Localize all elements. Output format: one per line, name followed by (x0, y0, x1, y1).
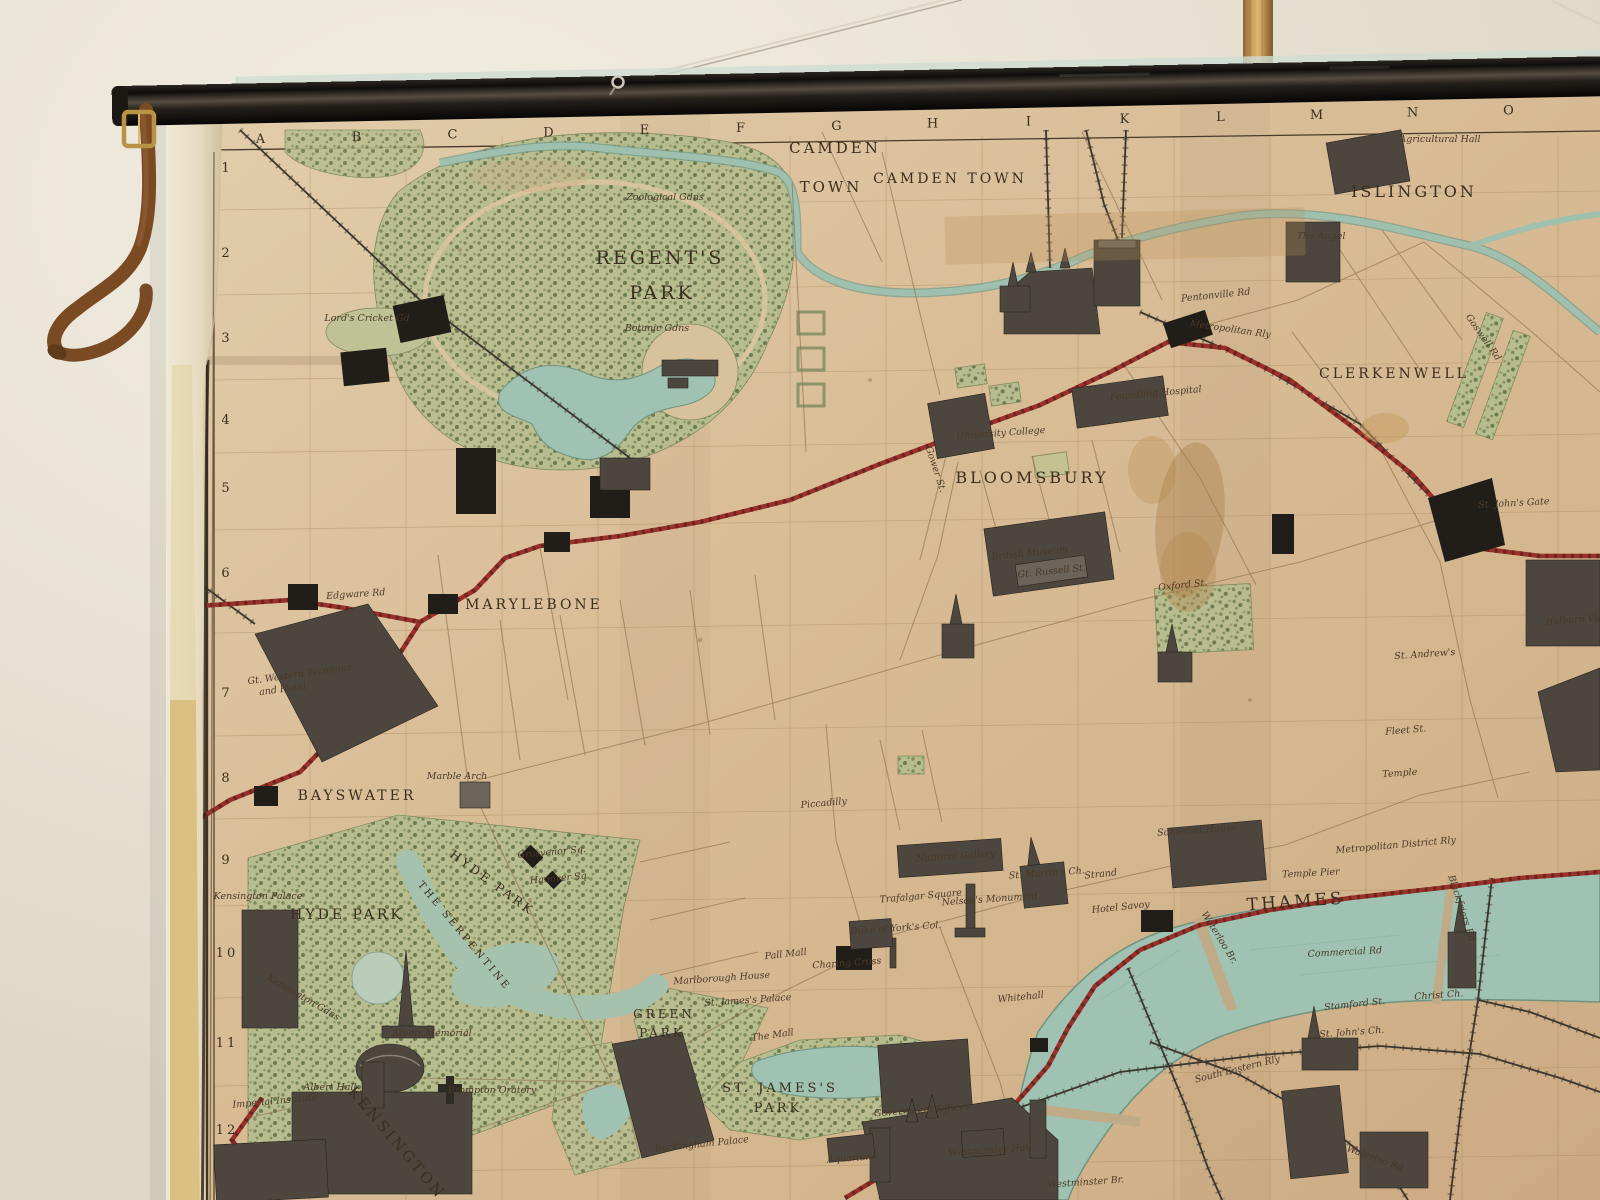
map-label-grid-letter-B: B (352, 130, 365, 145)
map-label-albert-hall: Albert Hall (302, 1082, 356, 1093)
map-label-grid-letter-M: M (1310, 108, 1326, 123)
map-label-camden-town-1b: TOWN (800, 178, 863, 196)
map-label-green-park-2: PARK (639, 1026, 685, 1040)
map-label-the-angel: The Angel (1297, 231, 1346, 242)
kensington-palace-building (242, 910, 298, 1028)
map-label-bayswater: BAYSWATER (298, 788, 417, 804)
map-label-grid-row-6: 6 (221, 566, 232, 581)
map-label-botanic-gdns: Botanic Gdns (624, 323, 689, 334)
map-label-grid-letter-E: E (640, 123, 653, 138)
map-label-st-jamess-park-2: PARK (754, 1101, 802, 1116)
map-label-grid-letter-C: C (448, 128, 461, 143)
map-label-marble-arch: Marble Arch (426, 771, 488, 782)
map-label-grid-letter-I: I (1026, 114, 1034, 129)
map-label-grid-letter-O: O (1503, 103, 1517, 118)
map-label-green-park-1: GREEN (633, 1007, 695, 1021)
map-label-islington: ISLINGTON (1351, 182, 1477, 201)
map-label-camden-town-1a: CAMDEN (789, 139, 881, 157)
round-pond (352, 952, 404, 1004)
map-label-brompton-oratory: Brompton Oratory (447, 1085, 537, 1096)
map-label-clerkenwell: CLERKENWELL (1319, 366, 1469, 382)
map-label-grid-row-1: 1 (221, 161, 232, 176)
map-label-grid-row-2: 2 (221, 246, 232, 261)
map-label-grid-row-3: 3 (221, 331, 232, 346)
map-label-grid-row-11: 11 (216, 1036, 239, 1051)
museums-row-building (214, 1139, 329, 1200)
map-label-grid-letter-A: A (255, 132, 268, 147)
map-label-zoological-gdns: Zoological Gdns (625, 192, 704, 203)
south-bank-building-1 (1282, 1085, 1349, 1179)
map-label-st-jamess-park-1: ST. JAMES'S (722, 1081, 838, 1096)
selvage-strip (170, 700, 200, 1200)
map-label-grid-letter-L: L (1216, 110, 1228, 125)
map-label-camden-town-2: CAMDEN TOWN (873, 171, 1027, 187)
university-college-building (928, 393, 995, 458)
leather-strap (45, 110, 154, 363)
map-label-grid-row-12: 12 (216, 1123, 239, 1138)
map-label-marylebone: MARYLEBONE (465, 597, 603, 613)
map-label-grid-letter-G: G (831, 119, 844, 134)
map-label-grid-letter-N: N (1407, 106, 1421, 121)
st-johns-gate-building (1480, 460, 1516, 490)
map-label-grid-letter-H: H (927, 117, 941, 132)
map-label-grid-row-4: 4 (221, 413, 232, 428)
euston-station-building (600, 458, 650, 490)
map-label-hyde-park-1: HYDE PARK (290, 907, 404, 923)
map-label-regents-park-1: REGENT'S (596, 247, 725, 269)
map-label-bloomsbury: BLOOMSBURY (955, 468, 1108, 487)
map-label-albert-memorial: Albert Memorial (391, 1028, 471, 1039)
map-label-grid-letter-K: K (1120, 112, 1133, 127)
marble-arch-monument (460, 782, 490, 808)
map-label-grid-row-8: 8 (221, 771, 232, 786)
map-label-grid-letter-F: F (736, 121, 748, 136)
photo-of-wall-map: Photograph of an antique pictorial wall … (0, 0, 1600, 1200)
map-label-grid-row-7: 7 (221, 686, 232, 701)
map-label-lords-cricket: Lord's Cricket Gd (323, 313, 409, 324)
city-building (1526, 560, 1600, 646)
map-label-grid-letter-D: D (543, 125, 556, 140)
map-label-regents-park-2: PARK (629, 282, 694, 304)
map-label-agricultural-hall: Agricultural Hall (1398, 134, 1480, 145)
map-label-kensington-palace: Kensington Palace (213, 891, 303, 902)
map-label-grid-row-9: 9 (221, 853, 232, 868)
map-sheet: CAMDENTOWNCAMDEN TOWNISLINGTONCLERKENWEL… (150, 94, 1600, 1200)
map-label-grid-row-5: 5 (221, 481, 232, 496)
map-label-grid-row-10: 10 (216, 946, 239, 961)
